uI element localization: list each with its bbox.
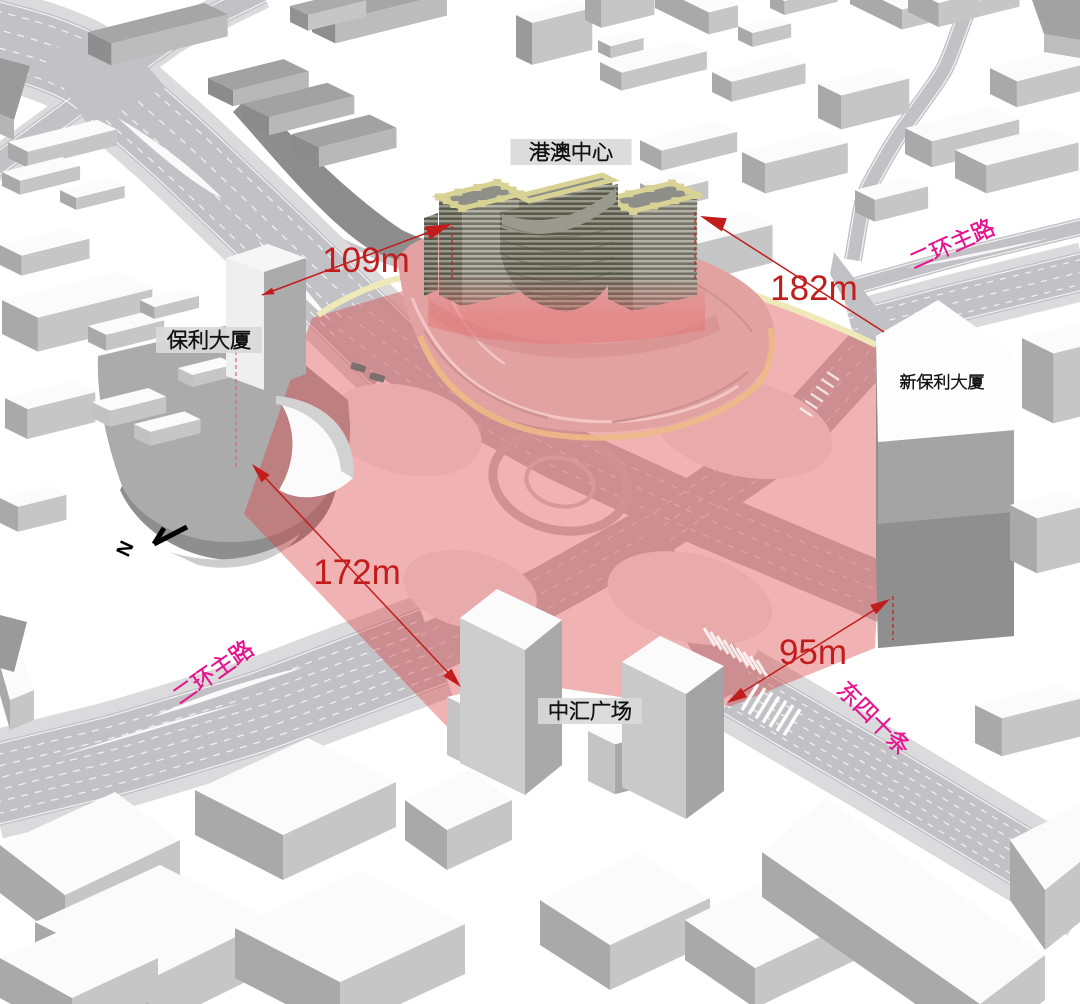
svg-text:109m: 109m xyxy=(322,241,410,280)
svg-text:95m: 95m xyxy=(779,633,847,672)
svg-text:182m: 182m xyxy=(770,269,858,308)
svg-text:172m: 172m xyxy=(313,553,401,592)
